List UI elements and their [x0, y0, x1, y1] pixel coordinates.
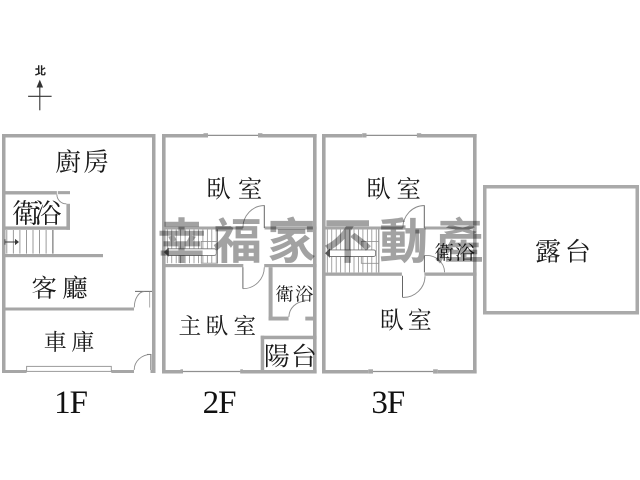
- svg-text:2F: 2F: [203, 385, 237, 421]
- svg-text:3F: 3F: [371, 385, 405, 421]
- svg-text:1F: 1F: [54, 385, 88, 421]
